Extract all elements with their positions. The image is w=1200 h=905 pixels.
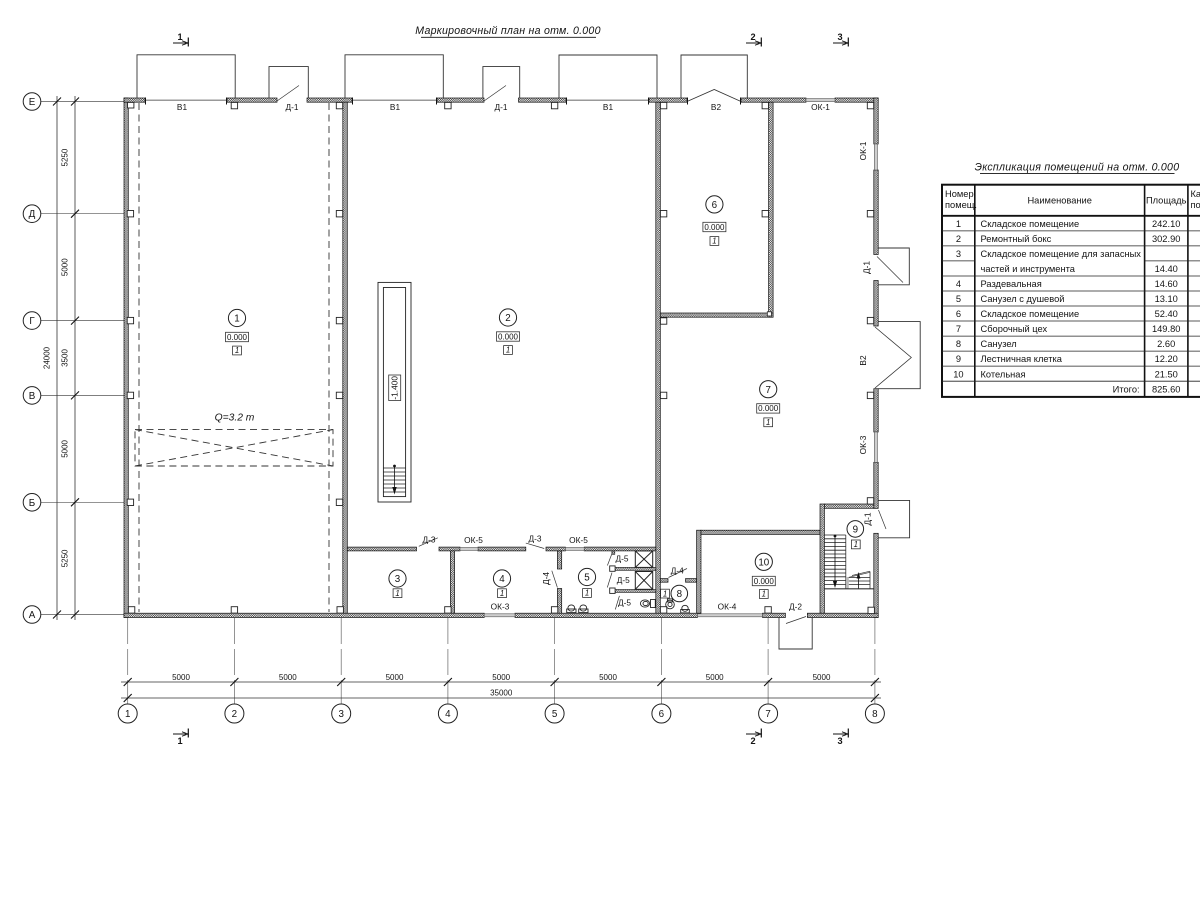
svg-text:ОК-3: ОК-3 [491,602,510,612]
svg-text:1: 1 [177,32,182,42]
svg-text:3: 3 [956,249,961,259]
svg-text:Ка: Ка [1191,189,1200,199]
svg-text:В1: В1 [390,102,401,112]
svg-text:В: В [29,391,36,402]
svg-text:2: 2 [505,313,510,324]
svg-text:13.10: 13.10 [1155,294,1178,304]
svg-text:Наименование: Наименование [1027,196,1091,206]
svg-text:9: 9 [853,525,858,536]
svg-text:1: 1 [663,589,667,598]
svg-text:Д-5: Д-5 [617,575,630,585]
svg-text:5: 5 [584,573,590,584]
svg-text:24000: 24000 [43,346,52,369]
svg-text:Д-1: Д-1 [286,102,299,112]
svg-text:5000: 5000 [492,673,510,682]
svg-text:Итого:: Итого: [1113,384,1140,394]
svg-text:7: 7 [956,324,961,334]
svg-text:0.000: 0.000 [754,577,775,586]
svg-text:Б: Б [29,498,35,509]
svg-text:5000: 5000 [386,673,404,682]
svg-text:Д-2: Д-2 [789,602,802,612]
svg-text:2.60: 2.60 [1157,339,1175,349]
svg-text:1: 1 [395,589,399,598]
svg-text:В2: В2 [858,355,868,366]
svg-text:Складское помещение: Складское помещение [981,219,1080,229]
svg-text:5000: 5000 [279,673,297,682]
svg-text:Д-4: Д-4 [541,572,551,585]
svg-text:52.40: 52.40 [1155,309,1178,319]
svg-text:1: 1 [506,346,510,355]
svg-text:1: 1 [762,590,766,599]
svg-text:0.000: 0.000 [227,333,248,342]
svg-text:1: 1 [177,736,182,746]
svg-text:Лестничная клетка: Лестничная клетка [981,354,1063,364]
svg-text:Д-3: Д-3 [529,534,542,544]
svg-text:0.000: 0.000 [704,223,725,232]
svg-text:Д-3: Д-3 [423,535,436,545]
svg-text:Котельная: Котельная [981,369,1026,379]
svg-text:Санузел с душевой: Санузел с душевой [981,294,1065,304]
svg-text:Сборочный цех: Сборочный цех [981,324,1048,334]
svg-text:Q=3.2 т: Q=3.2 т [215,413,255,424]
svg-text:5000: 5000 [172,673,190,682]
svg-text:14.60: 14.60 [1155,279,1178,289]
svg-text:2: 2 [232,709,237,720]
svg-text:Д-5: Д-5 [618,598,631,608]
svg-text:Санузел: Санузел [981,339,1017,349]
svg-text:Складское помещение для запасн: Складское помещение для запасных [981,249,1142,259]
svg-text:ОК-1: ОК-1 [858,141,868,160]
svg-text:8: 8 [677,589,683,600]
svg-text:7: 7 [765,385,770,396]
svg-text:ОК-4: ОК-4 [718,602,737,612]
svg-text:ОК-3: ОК-3 [858,435,868,454]
svg-text:5000: 5000 [61,439,70,457]
svg-text:1: 1 [234,314,239,325]
svg-text:5: 5 [552,709,558,720]
svg-text:4: 4 [956,279,961,289]
svg-text:3: 3 [338,709,344,720]
svg-text:1: 1 [585,589,589,598]
svg-text:Раздевальная: Раздевальная [981,279,1042,289]
svg-text:ОК-5: ОК-5 [464,535,483,545]
svg-text:5250: 5250 [61,549,70,567]
svg-text:5: 5 [956,294,961,304]
svg-text:10: 10 [953,369,963,379]
svg-text:4: 4 [499,574,505,585]
svg-text:5000: 5000 [813,673,831,682]
svg-text:Маркировочный план на отм. 0.0: Маркировочный план на отм. 0.000 [415,25,600,37]
svg-text:3: 3 [837,736,842,746]
svg-text:149.80: 149.80 [1152,324,1180,334]
svg-text:Д-5: Д-5 [616,554,629,564]
svg-text:7: 7 [765,709,770,720]
svg-text:21.50: 21.50 [1155,369,1178,379]
svg-text:5000: 5000 [706,673,724,682]
svg-text:Д-1: Д-1 [863,512,873,525]
svg-text:ОК-5: ОК-5 [569,535,588,545]
svg-text:5000: 5000 [61,258,70,276]
svg-text:Д-1: Д-1 [495,102,508,112]
svg-text:3: 3 [395,574,401,585]
svg-text:8: 8 [872,709,878,720]
svg-text:В2: В2 [711,102,722,112]
svg-text:5250: 5250 [61,148,70,166]
svg-text:Д: Д [29,209,36,220]
svg-text:Ремонтный бокс: Ремонтный бокс [981,234,1052,244]
svg-text:В1: В1 [603,102,614,112]
svg-text:Е: Е [29,97,36,108]
svg-text:Д-1: Д-1 [862,261,872,274]
svg-text:3500: 3500 [61,349,70,367]
svg-text:по: по [1191,200,1200,210]
svg-text:ОК-1: ОК-1 [811,102,830,112]
svg-text:6: 6 [956,309,961,319]
svg-text:3: 3 [837,32,842,42]
svg-text:помещ.: помещ. [945,200,977,210]
svg-text:1: 1 [956,219,961,229]
svg-text:1: 1 [766,418,770,427]
svg-text:14.40: 14.40 [1155,264,1178,274]
svg-text:0.000: 0.000 [758,404,779,413]
svg-text:Площадь: Площадь [1146,196,1187,206]
svg-text:6: 6 [712,200,718,211]
svg-text:10: 10 [758,557,769,568]
svg-text:-1.400: -1.400 [390,376,400,400]
svg-text:Г: Г [29,316,35,327]
svg-text:1: 1 [125,709,130,720]
svg-text:6: 6 [659,709,665,720]
svg-text:9: 9 [956,354,961,364]
svg-text:5000: 5000 [599,673,617,682]
svg-text:А: А [29,610,36,621]
svg-text:В1: В1 [177,102,188,112]
svg-text:Д-4: Д-4 [671,566,684,576]
svg-text:12.20: 12.20 [1155,354,1178,364]
svg-text:1: 1 [500,589,504,598]
svg-text:1: 1 [235,346,239,355]
svg-text:Экспликация помещений на отм.: Экспликация помещений на отм. 0.000 [975,162,1180,174]
svg-text:0.000: 0.000 [498,332,519,341]
svg-text:Складское помещение: Складское помещение [981,309,1080,319]
svg-text:2: 2 [956,234,961,244]
svg-text:302.90: 302.90 [1152,234,1180,244]
svg-text:частей и инструмента: частей и инструмента [981,264,1076,274]
svg-text:242.10: 242.10 [1152,219,1180,229]
svg-text:4: 4 [445,709,451,720]
svg-text:Номер: Номер [945,189,974,199]
svg-text:825.60: 825.60 [1152,384,1180,394]
svg-text:35000: 35000 [490,689,513,698]
svg-text:2: 2 [750,736,755,746]
svg-text:1: 1 [854,540,858,549]
svg-text:2: 2 [750,32,755,42]
svg-text:8: 8 [956,339,961,349]
svg-text:1: 1 [712,237,716,246]
